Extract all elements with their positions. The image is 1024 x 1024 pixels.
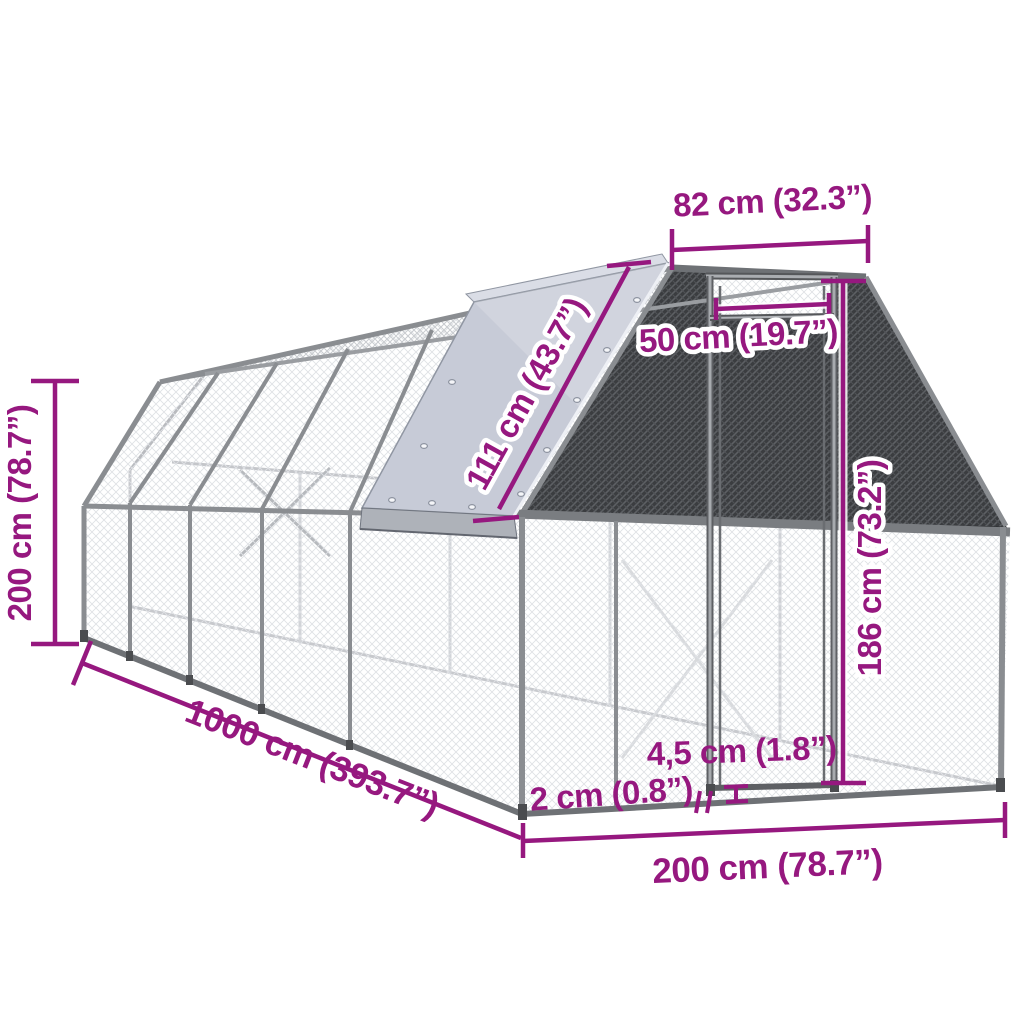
- dim-frame-bar-label: 4,5 cm (1.8”): [646, 729, 837, 773]
- dimension-height: 200 cm (78.7”): [1, 381, 79, 644]
- dimension-top-width: 82 cm (32.3”): [672, 177, 873, 270]
- dimension-width: 200 cm (78.7”): [523, 802, 1005, 891]
- dim-height-label: 200 cm (78.7”): [1, 405, 38, 622]
- dim-width-label: 200 cm (78.7”): [652, 842, 884, 891]
- dim-door-height-label: 186 cm (73.2”): [851, 460, 888, 677]
- front-wall-mesh: [516, 517, 1010, 814]
- dim-top-width-label: 82 cm (32.3”): [672, 177, 872, 223]
- chicken-run-dimension-diagram: 82 cm (32.3”) 50 cm (19.7”) 111 cm (43.7…: [0, 0, 1024, 1024]
